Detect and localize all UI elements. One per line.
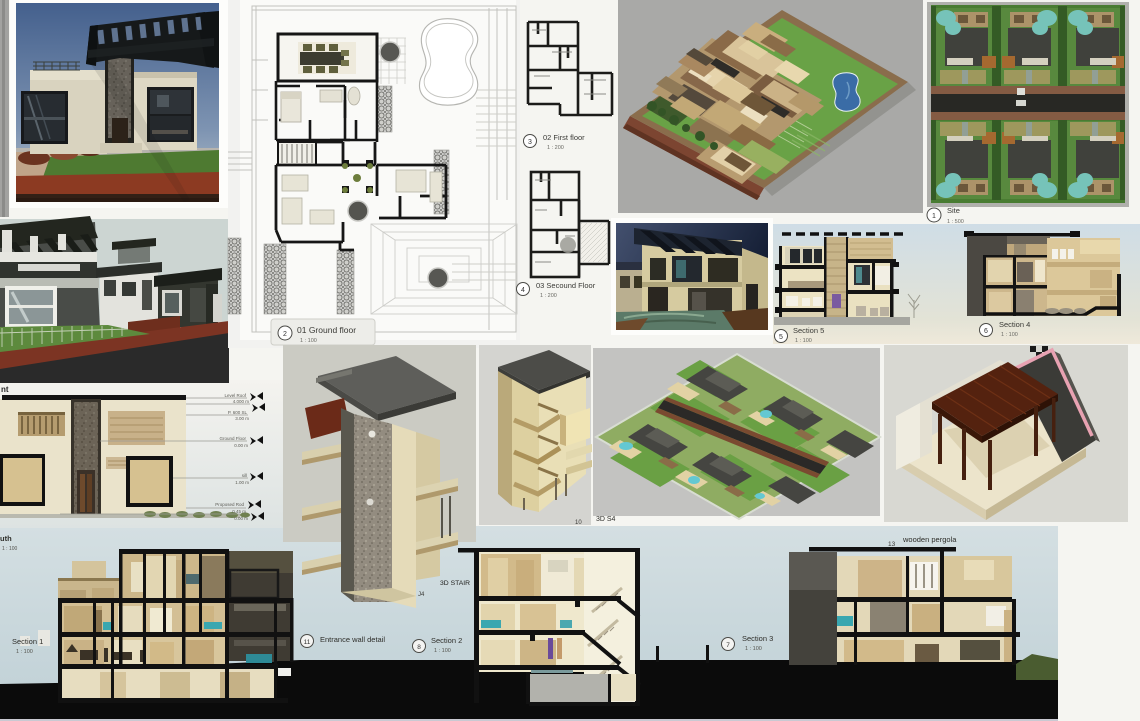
svg-text:3D S4: 3D S4	[596, 516, 616, 523]
svg-text:3: 3	[528, 139, 532, 146]
svg-text:1 : 100: 1 : 100	[434, 648, 451, 654]
svg-text:nt: nt	[1, 385, 9, 394]
svg-text:1: 1	[932, 213, 936, 220]
svg-text:5: 5	[779, 334, 783, 341]
svg-text:1.00 m: 1.00 m	[235, 480, 249, 485]
svg-text:0.00 m: 0.00 m	[234, 516, 248, 521]
svg-text:Section 3: Section 3	[742, 634, 773, 643]
svg-text:Section 4: Section 4	[999, 320, 1030, 329]
svg-text:03 Secound Floor: 03 Secound Floor	[536, 281, 596, 290]
svg-text:13: 13	[888, 541, 896, 548]
svg-text:Level Roof: Level Roof	[224, 393, 246, 398]
svg-text:11: 11	[304, 639, 311, 646]
svg-text:3.00 m: 3.00 m	[235, 416, 249, 421]
svg-text:10: 10	[575, 520, 582, 526]
svg-text:Section 1: Section 1	[12, 637, 43, 646]
svg-text:Section 5: Section 5	[793, 326, 824, 335]
svg-text:J4: J4	[418, 592, 425, 598]
svg-text:0.00 m: 0.00 m	[234, 443, 248, 448]
svg-text:1 : 100: 1 : 100	[16, 649, 33, 655]
svg-text:1 : 100: 1 : 100	[795, 338, 812, 344]
svg-text:7: 7	[726, 642, 730, 649]
svg-text:Ground Floor: Ground Floor	[219, 436, 246, 441]
svg-text:8: 8	[417, 644, 421, 651]
svg-text:6: 6	[984, 328, 988, 335]
svg-text:Proposed Rod: Proposed Rod	[215, 502, 244, 507]
svg-text:4.000 m: 4.000 m	[233, 399, 250, 404]
svg-text:2: 2	[283, 331, 287, 338]
svg-text:3D STAIR: 3D STAIR	[440, 580, 470, 587]
svg-text:1 : 100: 1 : 100	[300, 338, 317, 344]
svg-text:1 : 100: 1 : 100	[1001, 332, 1018, 338]
svg-text:Site: Site	[947, 206, 960, 215]
svg-text:0.45 m: 0.45 m	[232, 509, 246, 514]
svg-text:P. 600 SL: P. 600 SL	[228, 410, 248, 415]
svg-text:sill: sill	[242, 473, 247, 478]
svg-text:1 : 200: 1 : 200	[547, 145, 564, 151]
svg-text:1 : 100: 1 : 100	[2, 546, 18, 552]
svg-text:Section 2: Section 2	[431, 636, 462, 645]
svg-text:Entrance wall detail: Entrance wall detail	[320, 635, 385, 644]
svg-text:1 : 100: 1 : 100	[745, 646, 762, 652]
svg-text:uth: uth	[0, 534, 12, 543]
svg-text:02 First floor: 02 First floor	[543, 133, 585, 142]
svg-text:1 : 200: 1 : 200	[540, 293, 557, 299]
svg-text:wooden pergola: wooden pergola	[902, 535, 957, 544]
svg-text:4: 4	[521, 287, 525, 294]
svg-text:01 Ground floor: 01 Ground floor	[297, 325, 356, 335]
